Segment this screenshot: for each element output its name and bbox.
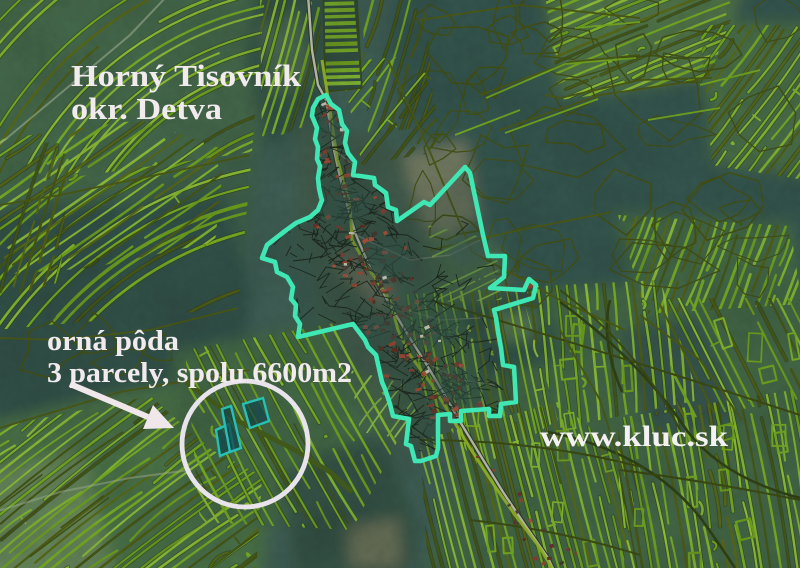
svg-text:Horný Tisovník: Horný Tisovník [71, 58, 302, 93]
svg-text:www.kluc.sk: www.kluc.sk [540, 420, 728, 453]
svg-text:3 parcely, spolu 6600m2: 3 parcely, spolu 6600m2 [47, 357, 352, 389]
svg-text:orná pôda: orná pôda [47, 325, 180, 357]
svg-text:okr. Detva: okr. Detva [71, 91, 223, 126]
